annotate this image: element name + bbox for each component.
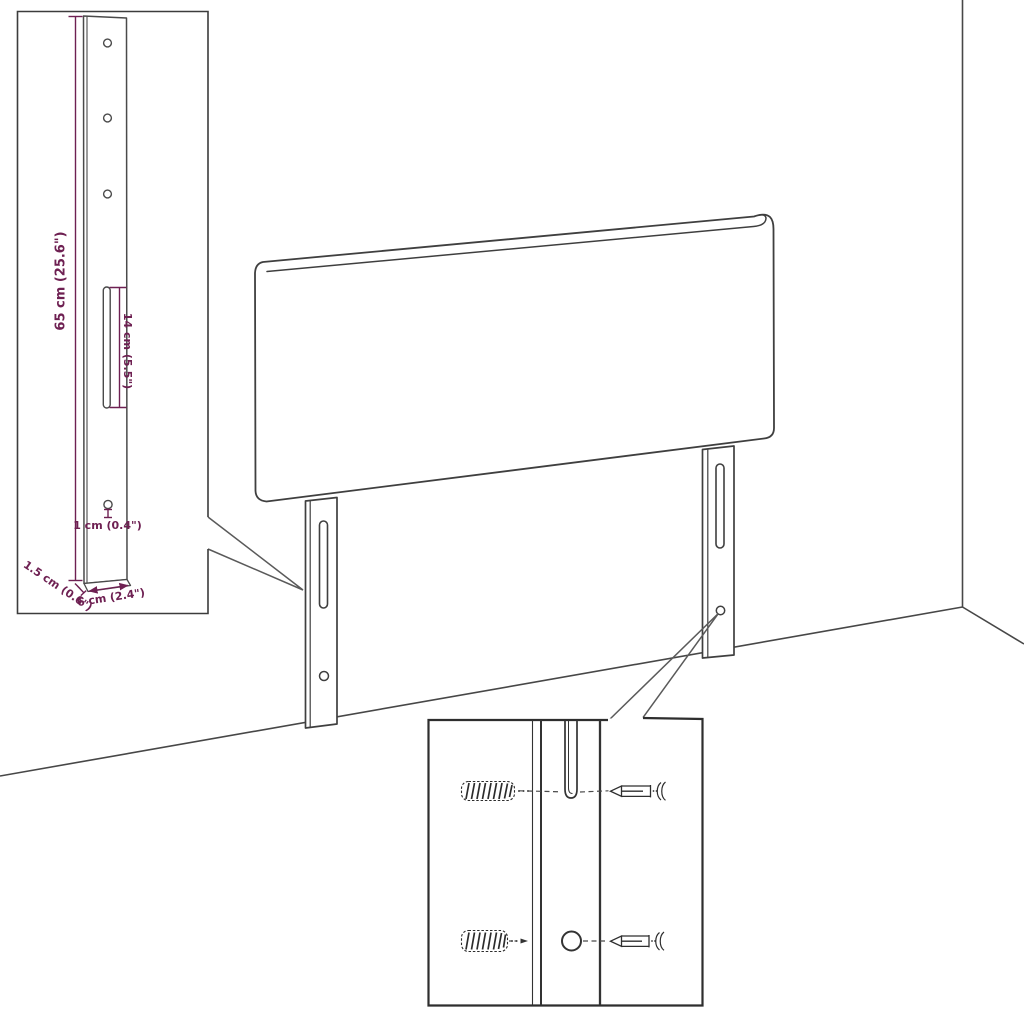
fixings-inset-callout-2 — [643, 613, 719, 717]
bracket-body — [84, 16, 128, 584]
label-hole-1cm: 1 cm (0.4") — [73, 519, 142, 532]
bracket-drawing — [84, 16, 131, 592]
dim-height-65cm — [69, 17, 83, 581]
headboard-dimension-diagram: 65 cm (25.6") 14 cm (5.5") 1 cm (0.4") 1… — [0, 0, 1024, 1024]
diagram-canvas: 65 cm (25.6") 14 cm (5.5") 1 cm (0.4") 1… — [0, 0, 1024, 1024]
left-leg — [306, 498, 338, 729]
floor-line-right — [963, 607, 1024, 644]
label-height-65cm: 65 cm (25.6") — [54, 231, 69, 330]
bracket-detail-inset: 65 cm (25.6") 14 cm (5.5") 1 cm (0.4") 1… — [18, 12, 209, 614]
bracket-inset-callout — [208, 517, 303, 590]
fixings-detail-inset — [429, 718, 703, 1006]
headboard-panel-outline — [255, 215, 774, 502]
right-leg — [703, 446, 735, 658]
callout-lines — [208, 517, 719, 721]
headboard-panel — [255, 215, 774, 502]
fixings-inset-callout-1 — [608, 614, 718, 721]
label-slot-14cm: 14 cm (5.5") — [121, 313, 134, 389]
